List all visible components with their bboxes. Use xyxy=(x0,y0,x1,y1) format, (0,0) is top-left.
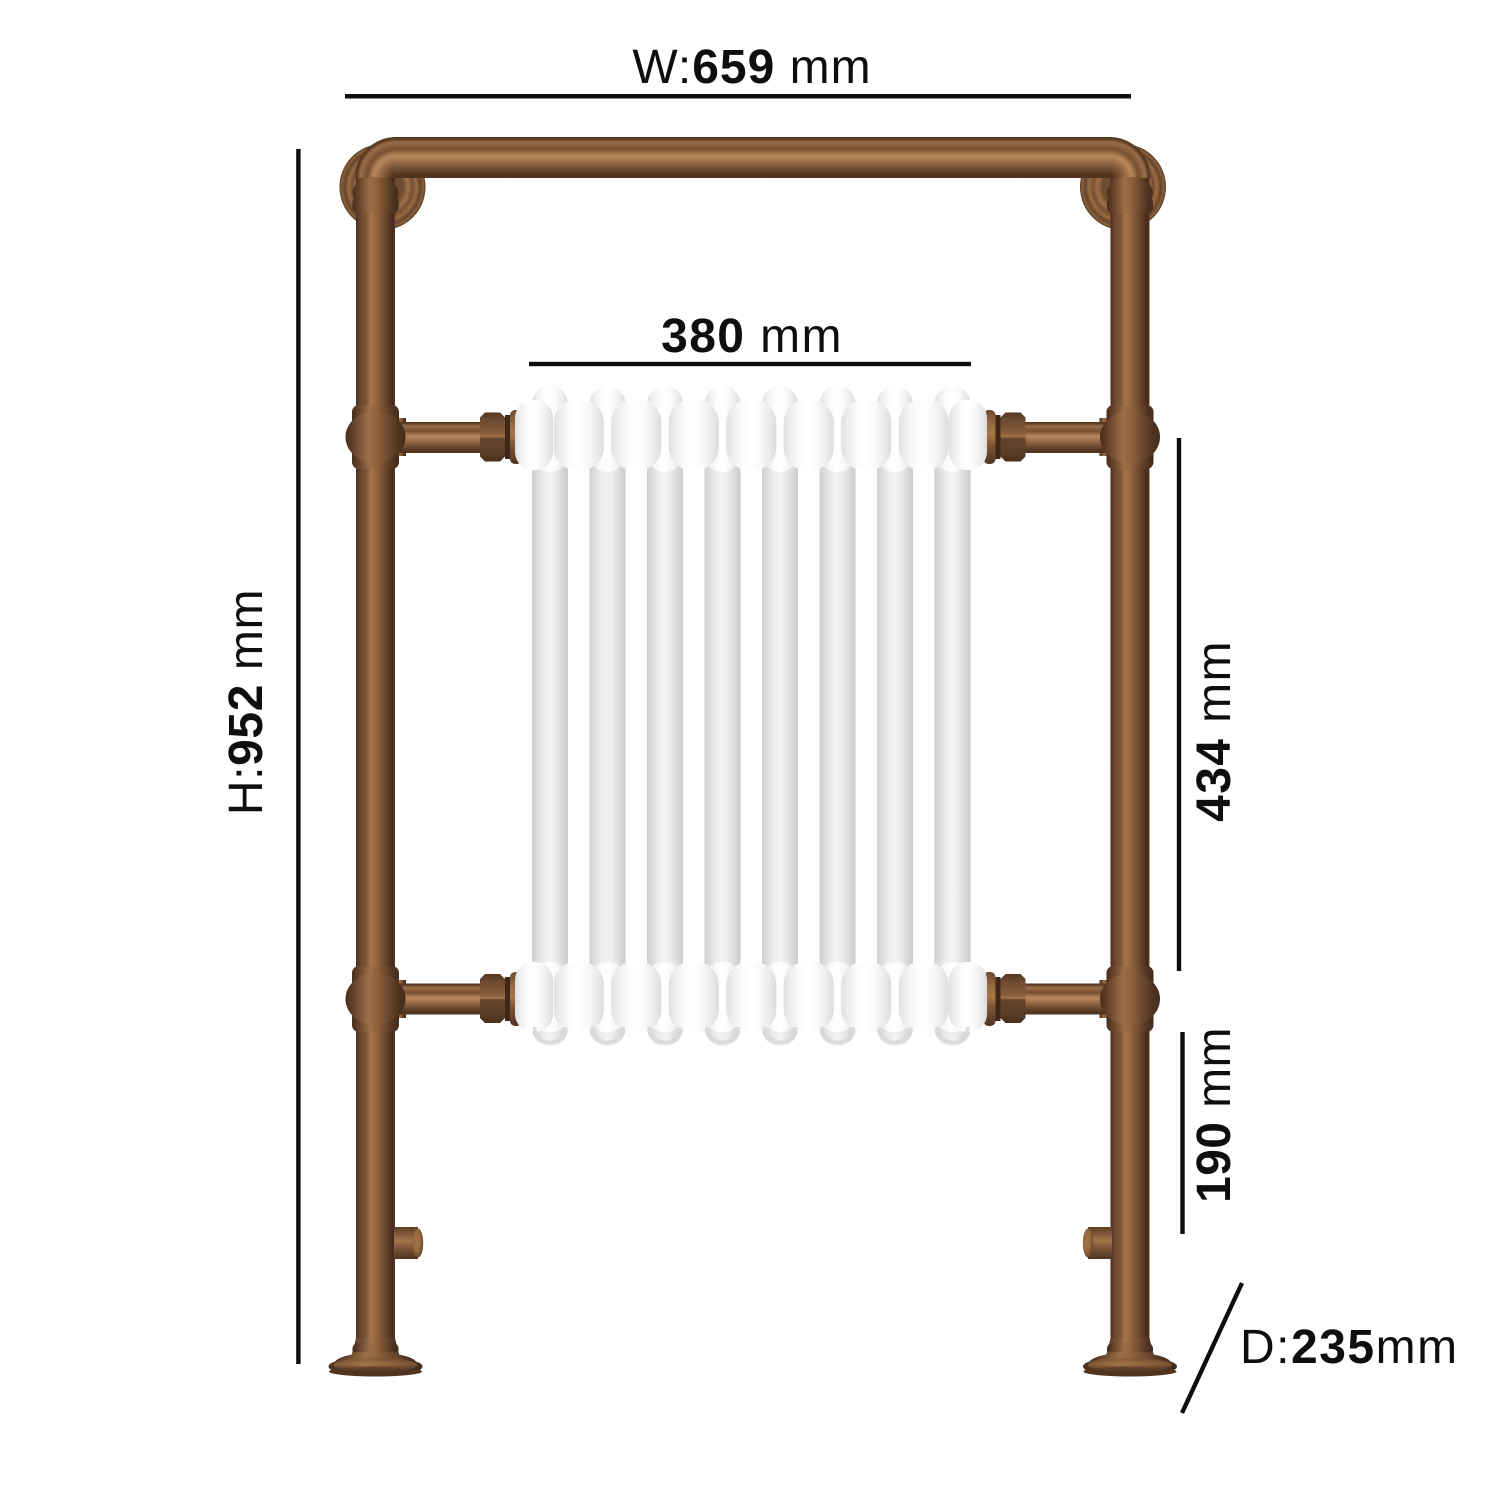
svg-text:H:952 mm: H:952 mm xyxy=(220,589,273,815)
svg-text:W:659 mm: W:659 mm xyxy=(632,41,871,94)
svg-text:434 mm: 434 mm xyxy=(1188,640,1241,822)
svg-text:380 mm: 380 mm xyxy=(661,310,843,363)
svg-text:D:235mm: D:235mm xyxy=(1240,1321,1459,1374)
svg-text:190 mm: 190 mm xyxy=(1188,1027,1241,1203)
